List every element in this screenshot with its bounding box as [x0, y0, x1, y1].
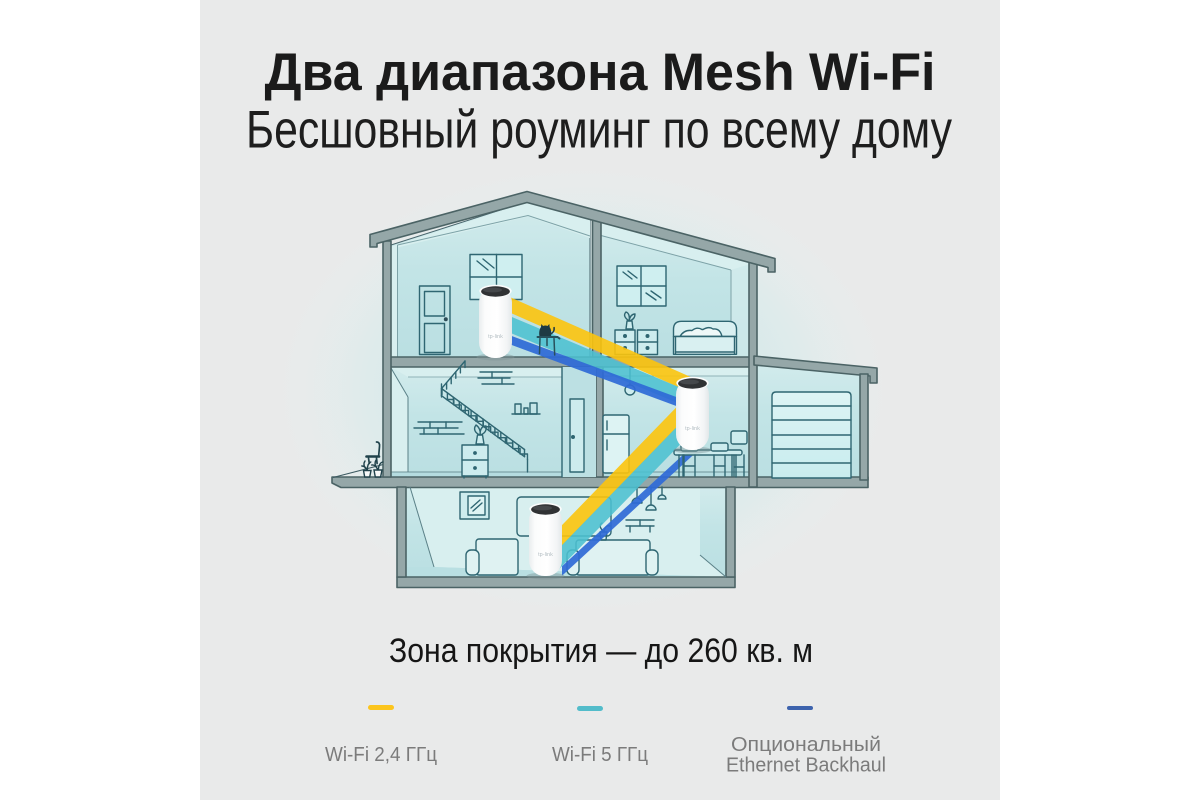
svg-text:tp-link: tp-link: [538, 552, 553, 558]
svg-text:Wi-Fi 2,4 ГГц: Wi-Fi 2,4 ГГц: [325, 744, 437, 766]
svg-text:Ethernet Backhaul: Ethernet Backhaul: [726, 755, 886, 777]
svg-text:Зона покрытия — до 260 кв. м: Зона покрытия — до 260 кв. м: [389, 632, 813, 670]
svg-text:tp-link: tp-link: [488, 334, 503, 340]
svg-text:Бесшовный роуминг по всему дом: Бесшовный роуминг по всему дому: [246, 101, 952, 160]
svg-text:Опциональный: Опциональный: [731, 734, 881, 756]
svg-text:Два диапазона Mesh Wi-Fi: Два диапазона Mesh Wi-Fi: [265, 43, 936, 102]
svg-text:Wi-Fi 5 ГГц: Wi-Fi 5 ГГц: [552, 744, 648, 766]
svg-text:tp-link: tp-link: [685, 426, 700, 432]
